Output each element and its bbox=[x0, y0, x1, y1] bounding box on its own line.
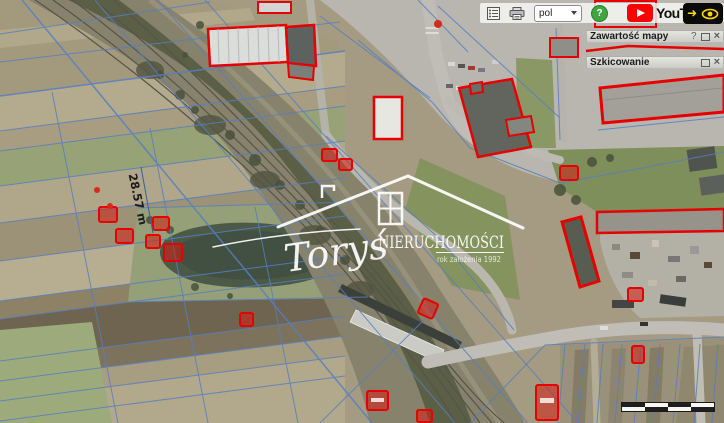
close-icon[interactable]: × bbox=[714, 57, 720, 68]
chevron-down-icon bbox=[571, 11, 577, 15]
panel-map-contents[interactable]: Zawartość mapy ? × bbox=[586, 30, 724, 43]
panel-sketching[interactable]: Szkicowanie × bbox=[586, 56, 724, 69]
close-icon[interactable]: × bbox=[714, 31, 720, 42]
eye-button[interactable] bbox=[701, 8, 719, 20]
language-select[interactable]: pol bbox=[534, 5, 582, 22]
eye-icon bbox=[701, 8, 719, 20]
print-icon[interactable] bbox=[509, 7, 525, 20]
map-viewer-window: 28.57 m Toryś NIERUCHOMOŚCI rok założeni… bbox=[0, 0, 724, 423]
language-select-value: pol bbox=[539, 8, 552, 19]
maximize-icon[interactable] bbox=[701, 33, 710, 41]
help-button[interactable]: ? bbox=[591, 5, 608, 22]
panel-help-button[interactable]: ? bbox=[691, 31, 697, 42]
youtube-play-icon bbox=[627, 4, 653, 22]
toolbar: pol ? YouTube ➜ bbox=[480, 3, 724, 23]
panel-sketching-title: Szkicowanie bbox=[590, 57, 697, 68]
panel-map-contents-title: Zawartość mapy bbox=[590, 31, 687, 42]
arrow-button[interactable]: ➜ bbox=[687, 3, 697, 24]
scale-bar bbox=[621, 402, 715, 412]
watermark-name: NIERUCHOMOŚCI bbox=[378, 232, 504, 253]
legend-icon[interactable] bbox=[487, 7, 500, 20]
quick-actions-group: ➜ bbox=[683, 3, 723, 24]
watermark-subtitle: rok założenia 1992 bbox=[437, 255, 501, 264]
maximize-icon[interactable] bbox=[701, 59, 710, 67]
